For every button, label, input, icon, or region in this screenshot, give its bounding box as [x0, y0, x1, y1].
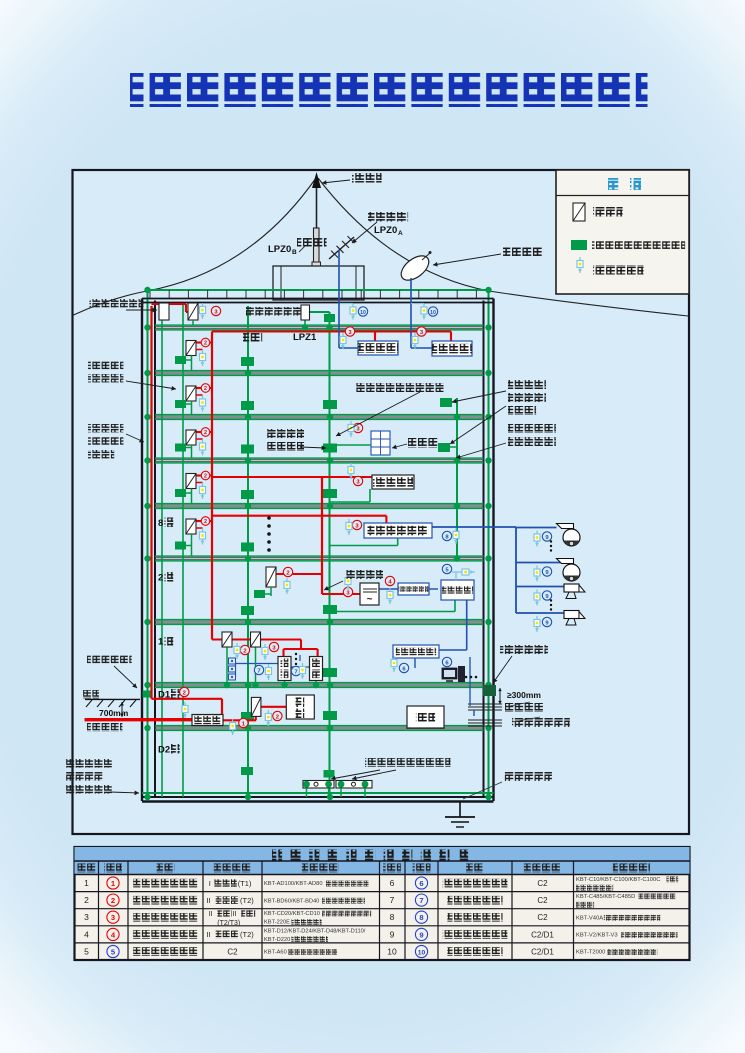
- svg-text:9: 9: [390, 929, 395, 939]
- svg-text:700mm: 700mm: [99, 708, 129, 718]
- svg-text:7: 7: [390, 895, 395, 905]
- svg-text:KBT-220E: KBT-220E: [264, 920, 290, 926]
- svg-text:II: II: [233, 911, 237, 918]
- svg-text:LPZ0: LPZ0: [374, 225, 397, 236]
- svg-text:1: 1: [84, 878, 89, 888]
- svg-text:(T2): (T2): [240, 930, 254, 939]
- svg-text:8: 8: [390, 912, 395, 922]
- svg-text:KBT-T2000: KBT-T2000: [576, 950, 605, 956]
- svg-text:≥300mm: ≥300mm: [507, 690, 541, 700]
- svg-text:KBT-C485/KBT-C485D: KBT-C485/KBT-C485D: [576, 894, 635, 900]
- svg-text:KBT-BD60/KBT-BD40: KBT-BD60/KBT-BD40: [264, 898, 319, 904]
- svg-text:LPZ1: LPZ1: [293, 332, 317, 343]
- svg-text:2: 2: [158, 572, 163, 583]
- svg-text:C2/D1: C2/D1: [531, 948, 554, 957]
- svg-text:D2: D2: [158, 744, 170, 755]
- svg-text:2: 2: [204, 474, 207, 480]
- svg-text:3: 3: [84, 912, 89, 922]
- svg-text:A: A: [398, 230, 403, 237]
- svg-text:~: ~: [367, 594, 373, 605]
- svg-text:KBT-V2/KBT-V3: KBT-V2/KBT-V3: [576, 933, 618, 939]
- svg-text:KBT-C10/KBT-C100/KBT-C100C: KBT-C10/KBT-C100/KBT-C100C: [576, 877, 660, 883]
- svg-text:D1: D1: [158, 689, 171, 700]
- svg-text:2: 2: [84, 895, 89, 905]
- svg-text:6: 6: [419, 879, 423, 888]
- svg-text:8: 8: [158, 518, 163, 529]
- svg-text:C2: C2: [227, 948, 238, 957]
- svg-text:LPZ0: LPZ0: [268, 244, 291, 255]
- svg-text:KBT-D220: KBT-D220: [264, 937, 290, 943]
- svg-text:3: 3: [111, 913, 115, 922]
- svg-text:C2: C2: [537, 879, 548, 888]
- svg-text:10: 10: [387, 947, 397, 957]
- svg-text:10: 10: [360, 310, 366, 316]
- svg-text:4: 4: [84, 929, 89, 939]
- svg-text:KBT-AD100/KBT-AD80: KBT-AD100/KBT-AD80: [264, 881, 322, 887]
- svg-text:10: 10: [430, 310, 436, 316]
- svg-text:2: 2: [204, 519, 207, 525]
- svg-text:7: 7: [294, 669, 297, 675]
- svg-text:7: 7: [419, 896, 423, 905]
- svg-text:II: II: [209, 911, 213, 918]
- svg-text:9: 9: [419, 930, 423, 939]
- svg-text:2: 2: [204, 341, 207, 347]
- svg-text:7: 7: [257, 668, 260, 674]
- svg-text:C2/D1: C2/D1: [531, 930, 554, 939]
- svg-text:(T2/T3): (T2/T3): [217, 920, 240, 927]
- svg-text:II: II: [206, 930, 210, 939]
- svg-text:II: II: [206, 896, 210, 905]
- svg-text:2: 2: [204, 386, 207, 392]
- svg-text:I: I: [209, 879, 211, 888]
- svg-text:KBT-CD20/KBT-CD10: KBT-CD20/KBT-CD10: [264, 911, 320, 917]
- svg-text:(T2): (T2): [240, 896, 254, 905]
- svg-text:(T1): (T1): [238, 879, 252, 888]
- svg-text:6: 6: [390, 878, 395, 888]
- svg-text:KBT-A60: KBT-A60: [264, 950, 287, 956]
- svg-text:10: 10: [418, 949, 426, 956]
- svg-text:5: 5: [84, 947, 89, 957]
- svg-text:C2: C2: [537, 896, 548, 905]
- svg-text:KBT-V40A: KBT-V40A: [576, 916, 603, 922]
- svg-text:2: 2: [111, 896, 115, 905]
- svg-text:8: 8: [419, 913, 423, 922]
- svg-text:2: 2: [204, 430, 207, 436]
- svg-text:C2: C2: [537, 913, 548, 922]
- svg-text:KBT-D12/KBT-D24/KBT-D48/KBT-D1: KBT-D12/KBT-D24/KBT-D48/KBT-D110/: [264, 928, 366, 934]
- svg-text:1: 1: [158, 636, 164, 647]
- svg-text:B: B: [292, 249, 297, 256]
